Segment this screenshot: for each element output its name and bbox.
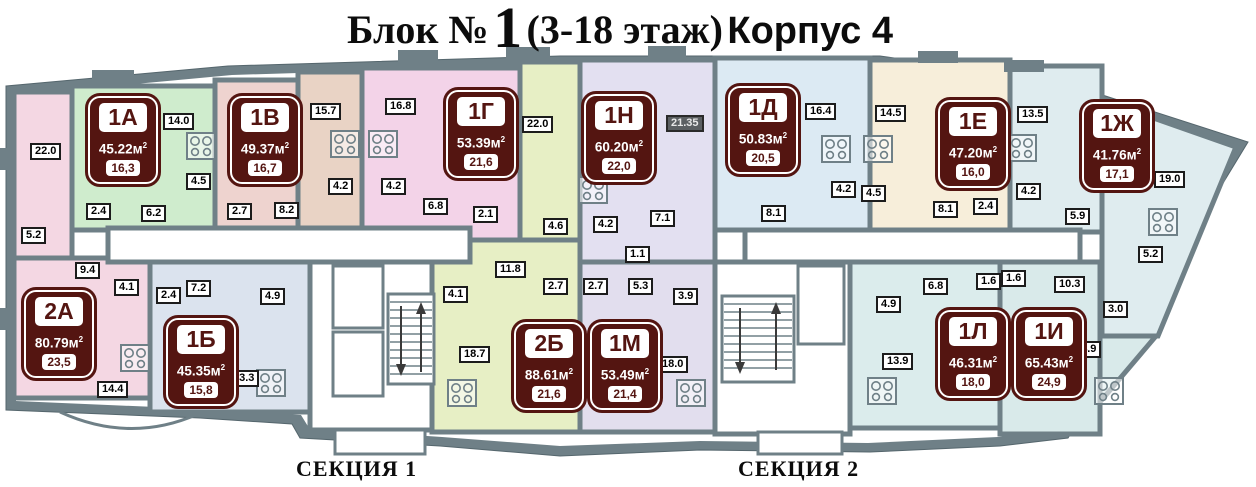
floorplan-page: Блок № 1 (3-18 этаж) Корпус 4 СЕКЦИЯ 1 С… (0, 0, 1256, 487)
page-title: Блок № 1 (3-18 этаж) Корпус 4 (347, 0, 893, 61)
staircase-1 (388, 294, 434, 384)
title-korpus: Корпус 4 (727, 10, 893, 52)
section-1-label: СЕКЦИЯ 1 (296, 456, 417, 482)
title-block: Блок № (347, 7, 489, 52)
title-block-number: 1 (493, 0, 522, 60)
staircase-2 (722, 296, 794, 382)
title-floors: (3-18 этаж) (527, 7, 723, 52)
section-2-label: СЕКЦИЯ 2 (738, 456, 859, 482)
floorplan-drawing (0, 0, 1256, 487)
